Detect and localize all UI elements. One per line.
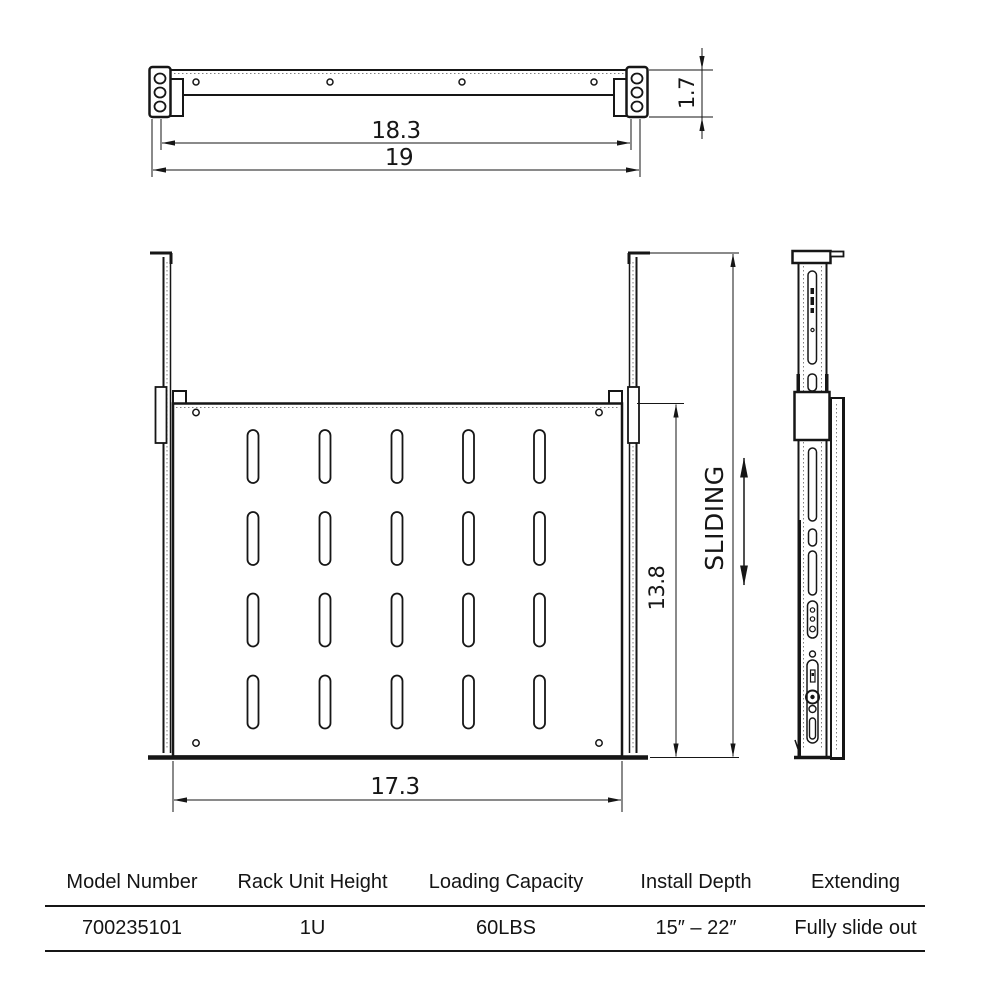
side-view-slide-rail	[793, 251, 846, 759]
shelf-corner-hole	[193, 740, 199, 746]
cell-loading-capacity: 60LBS	[406, 907, 606, 950]
technical-drawing: 18.3 19 1.7	[0, 0, 1000, 1000]
column-header-rack-unit-height: Rack Unit Height	[219, 860, 406, 905]
left-rail	[150, 253, 172, 753]
ear-hole	[632, 88, 643, 98]
sliding-annotation: SLIDING	[700, 458, 744, 585]
left-rail-inner-member	[156, 387, 167, 443]
ear-hole	[155, 74, 166, 84]
rail-top-tab	[831, 252, 844, 257]
right-rail-inner-member	[628, 387, 639, 443]
shelf-tab-right	[609, 391, 622, 404]
cell-model-number: 700235101	[45, 907, 219, 950]
ear-hole	[632, 102, 643, 112]
shelf-corner-hole	[596, 409, 602, 415]
dimension-label: 19	[385, 145, 413, 171]
shelf-corner-hole	[193, 409, 199, 415]
column-header-extending: Extending	[786, 860, 925, 905]
dimension-bracket-height: 1.7	[649, 48, 713, 139]
dimension-label: 17.3	[370, 774, 419, 800]
dimension-label: 1.7	[675, 77, 699, 109]
right-rail	[628, 253, 650, 753]
top-view-mount-bar	[150, 67, 648, 117]
column-header-install-depth: Install Depth	[606, 860, 786, 905]
page: 18.3 19 1.7	[0, 0, 1000, 1000]
sliding-label: SLIDING	[700, 465, 729, 570]
ear-hole	[155, 102, 166, 112]
dimension-shelf-width: 17.3	[173, 761, 622, 812]
dimension-label: 18.3	[371, 118, 420, 144]
ear-hole	[632, 74, 643, 84]
bar-hole	[591, 79, 597, 85]
bar-hole	[327, 79, 333, 85]
column-header-loading-capacity: Loading Capacity	[406, 860, 606, 905]
cell-install-depth: 15″ – 22″	[606, 907, 786, 950]
spec-table-value-row: 700235101 1U 60LBS 15″ – 22″ Fully slide…	[45, 907, 925, 952]
cell-rack-unit-height: 1U	[219, 907, 406, 950]
ear-hole	[155, 88, 166, 98]
shelf-corner-hole	[596, 740, 602, 746]
right-slide-block	[614, 79, 627, 116]
carriage-block	[795, 392, 830, 440]
shelf-tab-left	[173, 391, 186, 404]
bar-hole	[193, 79, 199, 85]
spec-table: Model Number Rack Unit Height Loading Ca…	[45, 860, 925, 952]
column-header-model-number: Model Number	[45, 860, 219, 905]
rail-top-cap	[793, 251, 831, 263]
dimension-shelf-depth: 13.8	[637, 404, 684, 757]
cell-extending: Fully slide out	[786, 907, 925, 950]
inner-member	[799, 263, 827, 757]
left-slide-block	[170, 79, 183, 116]
dimension-label: 13.8	[645, 566, 669, 611]
bar-hole	[459, 79, 465, 85]
front-view-shelf	[148, 253, 650, 758]
spec-table-header-row: Model Number Rack Unit Height Loading Ca…	[45, 860, 925, 907]
